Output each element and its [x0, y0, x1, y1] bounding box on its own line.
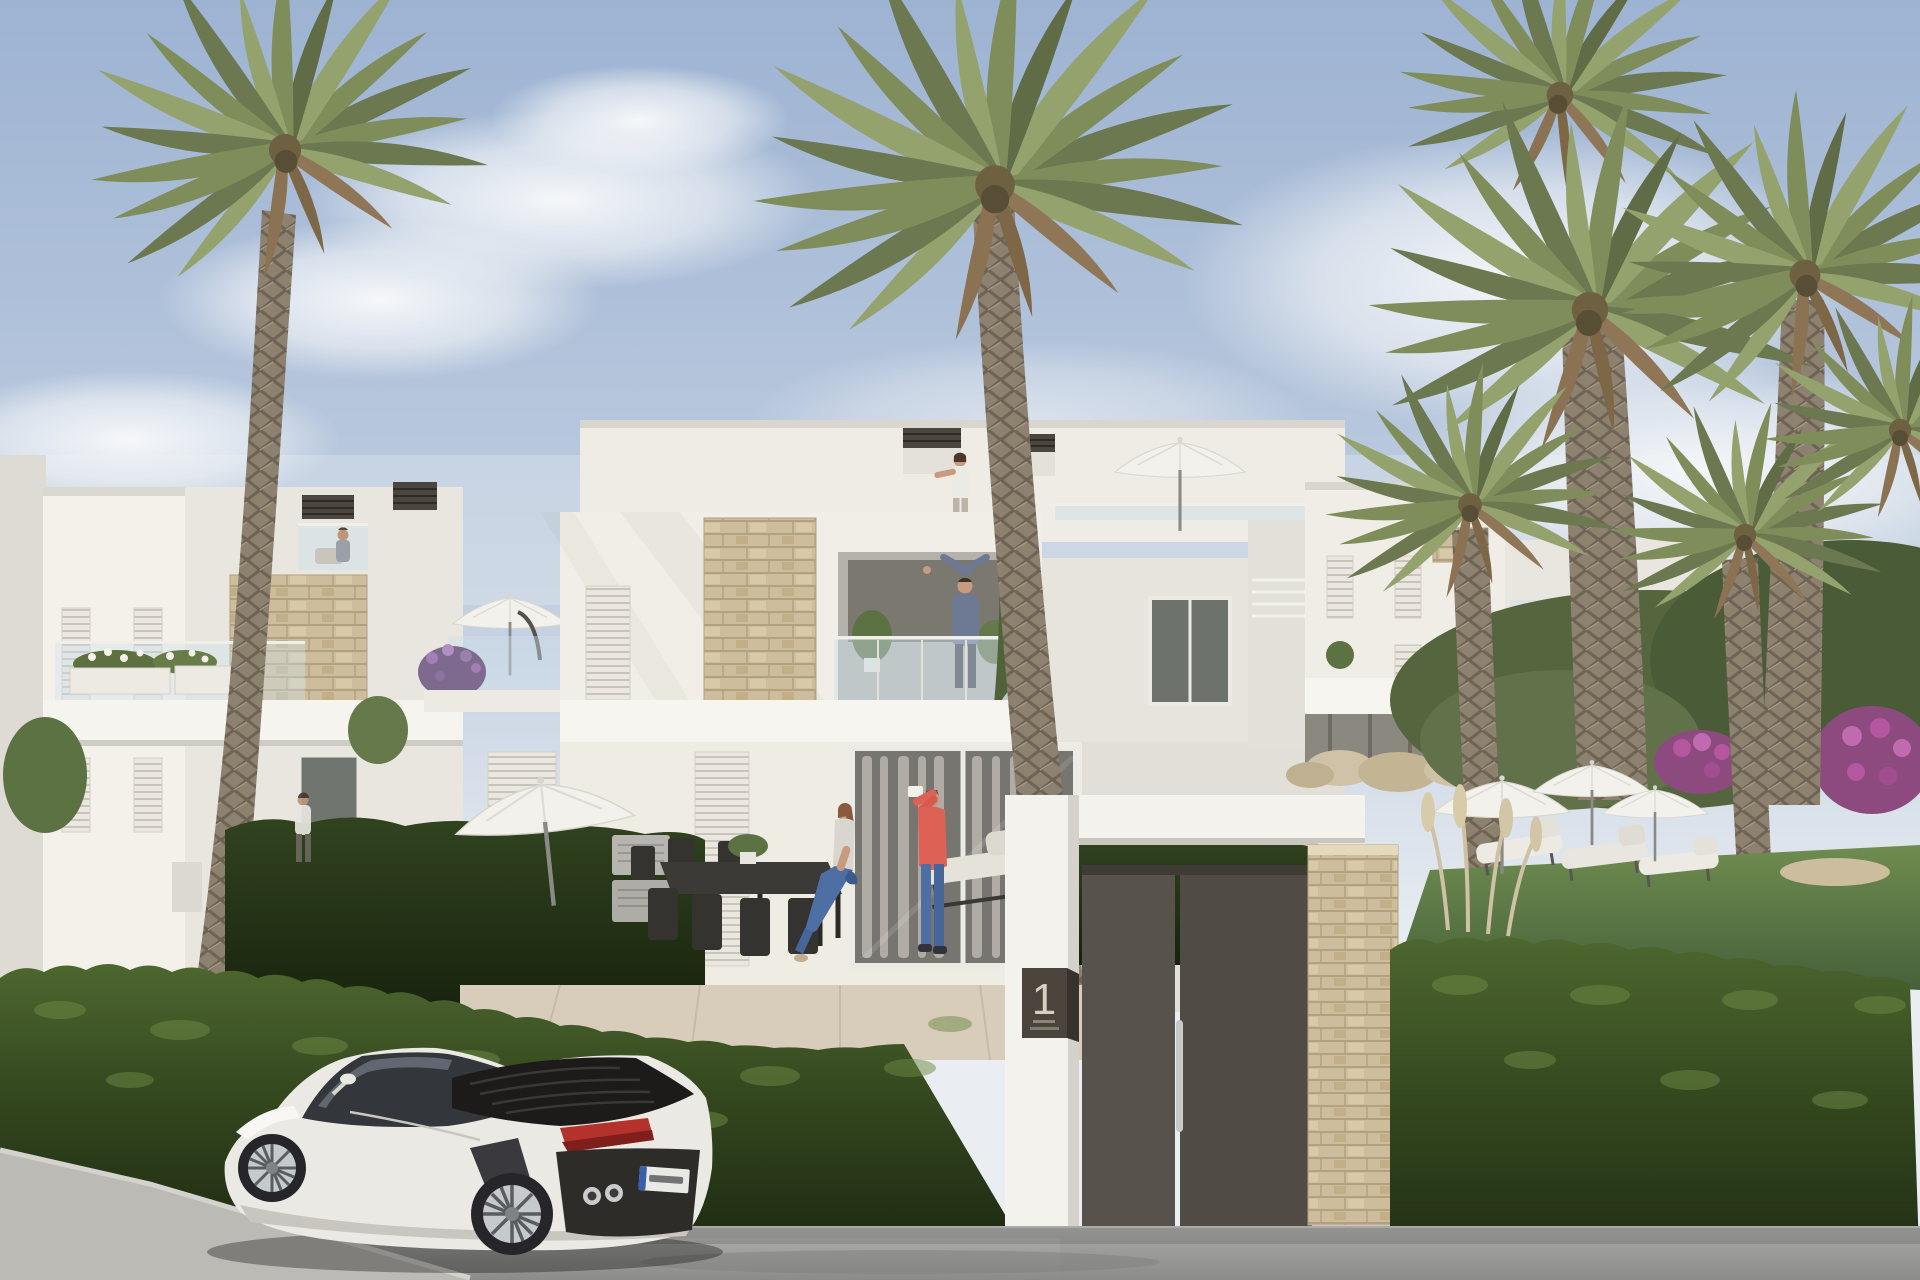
small-tree	[3, 717, 87, 833]
coral-jacket	[918, 806, 947, 870]
louver-shutter	[586, 586, 630, 700]
balustrade-rail	[298, 523, 368, 526]
car-wheel-front	[238, 1134, 306, 1202]
rendered-photo: 1	[0, 0, 1920, 1280]
plaque-caption-line	[1033, 1020, 1055, 1023]
gate-door-left-leaf	[1082, 865, 1175, 1233]
balcony-first-floor	[834, 552, 1018, 702]
plaque-side	[1067, 968, 1079, 1042]
gate-door-right-leaf	[1180, 865, 1312, 1233]
cloud	[160, 220, 600, 380]
balustrade-rail	[55, 641, 305, 644]
planter-box	[424, 690, 574, 712]
scene-render: 1	[0, 0, 1920, 1280]
cloud	[490, 65, 790, 175]
balcony-planters	[55, 641, 305, 702]
hanging-plant	[1326, 641, 1354, 669]
plaque-caption-line	[1030, 1027, 1059, 1030]
balustrade-rail	[834, 636, 1018, 640]
wall	[1248, 520, 1310, 750]
planter-box	[70, 668, 170, 694]
parapet-edge	[580, 420, 1345, 428]
louver-shutter	[134, 758, 162, 832]
garden-path	[1780, 858, 1890, 886]
parapet-band	[560, 700, 1042, 744]
gate-handle	[1176, 1020, 1183, 1132]
planter-box	[175, 666, 231, 694]
table-plant-pot	[740, 852, 756, 864]
gate-stone-pillar	[1308, 845, 1398, 1225]
car-license-plate	[638, 1166, 690, 1193]
gate-plaque-number: 1	[1032, 975, 1056, 1024]
parapet-edge	[43, 487, 187, 496]
stone-pillar-cap	[1308, 845, 1398, 855]
gate-plaque: 1	[1022, 968, 1079, 1042]
roof-glass-balustrade	[1055, 504, 1345, 520]
table-top	[660, 862, 842, 894]
hedge-post	[172, 862, 202, 912]
stone-clad-panel	[704, 518, 816, 704]
small-bush	[348, 696, 408, 764]
entrance-gate: 1	[1005, 795, 1398, 1235]
louver-window	[1327, 556, 1353, 618]
car-wheel-rear	[471, 1173, 553, 1255]
gate-door-top-shadow	[1082, 865, 1312, 875]
glass-balustrade	[834, 638, 1018, 702]
